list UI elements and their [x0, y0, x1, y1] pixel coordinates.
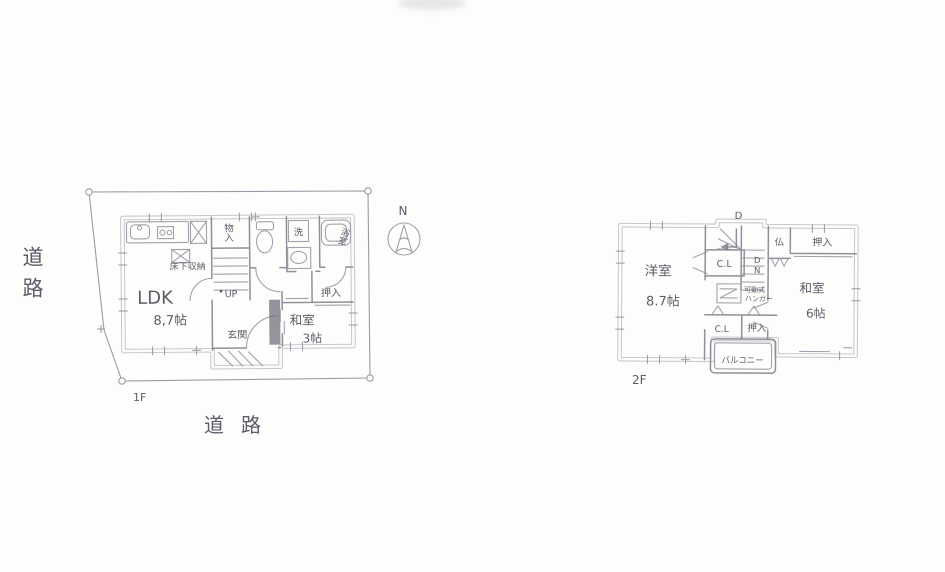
room-size-western: 8.7帖 [646, 294, 680, 309]
burner-dot [167, 230, 171, 234]
floor1-label: 1F [133, 391, 146, 404]
kitchen-sink [130, 225, 149, 239]
lot-corner-marker [367, 375, 373, 381]
label-floor-storage: 床下収納 [170, 260, 206, 272]
label-closet-upper: C.L [717, 259, 733, 270]
road-label-left: 道路 [20, 246, 44, 308]
toilet-bowl [256, 231, 272, 253]
room-size-washitsu-1f: 3帖 [303, 330, 323, 345]
hanger-zigzag [720, 289, 737, 298]
floorplan-sketch: 道路 道路 N [0, 0, 945, 572]
porch-hatch [219, 351, 263, 366]
room-label-ldk: LDK [137, 288, 174, 309]
lot-corner-marker [119, 378, 125, 384]
burner-dot [160, 230, 165, 235]
stair-treads [214, 258, 248, 290]
room-label-washitsu-1f: 和室 [290, 312, 315, 327]
toilet-fixture [256, 222, 273, 253]
north-indicator: N [388, 204, 420, 255]
label-oshiire-top: 押入 [812, 236, 832, 249]
label-hanger-line1: 可動式 [744, 285, 765, 294]
floor1-plan: LDK 8,7帖 床下収納 物入 UP 洗 浴室 押入 和室 3帖 玄関 [118, 212, 357, 368]
room-label-washitsu-2f: 和室 [799, 280, 824, 295]
refrigerator-space [190, 221, 206, 243]
faucet-dot [137, 226, 141, 230]
underfloor-storage [172, 249, 190, 262]
floor-storage-cross [172, 249, 190, 262]
room-size-ldk: 8,7帖 [153, 313, 187, 328]
north-label: N [399, 204, 408, 218]
label-stair-top-d: D [735, 211, 743, 222]
north-compass-circle [388, 223, 420, 255]
wash-basin [291, 251, 307, 263]
label-closet-1f: 押入 [321, 286, 341, 299]
room-size-washitsu-2f: 6帖 [806, 305, 826, 320]
shoe-cabinet [269, 300, 280, 345]
label-oshiire-mid: 押入 [747, 322, 767, 334]
movable-hanger-unit [717, 284, 741, 303]
label-storage-closet: 物入 [222, 222, 234, 242]
lot-corner-marker [365, 188, 371, 194]
label-altar: 仏 [775, 237, 785, 248]
north-arrow-icon [396, 225, 412, 252]
label-balcony: バルコニー [721, 356, 763, 366]
stairs-1f [214, 258, 248, 293]
floor2-plan: 洋室 8.7帖 C.L D DN 仏 押入 和室 6帖 可動式 ハンガー C.L… [615, 210, 860, 374]
label-entrance: 玄関 [227, 328, 247, 341]
label-hanger-line2: ハンガー [745, 294, 773, 303]
toilet-tank [256, 222, 273, 230]
fridge-cross [190, 221, 206, 243]
floor1-door-arcs [190, 267, 347, 348]
floor2-label: 2F [632, 373, 647, 387]
label-stair-down: DN [752, 256, 762, 276]
up-dot [220, 290, 223, 293]
room-label-western: 洋室 [645, 262, 672, 279]
label-stairs-up: UP [225, 289, 238, 300]
label-closet-lower: C.L [715, 325, 729, 335]
sliding-door-marks-2f [794, 256, 853, 351]
kitchen-counter [126, 221, 188, 243]
label-laundry: 洗 [294, 226, 304, 238]
scanned-floorplan-page: 道路 道路 N [0, 0, 945, 572]
lot-corner-marker [86, 189, 92, 195]
road-label-bottom: 道路 [204, 413, 278, 437]
